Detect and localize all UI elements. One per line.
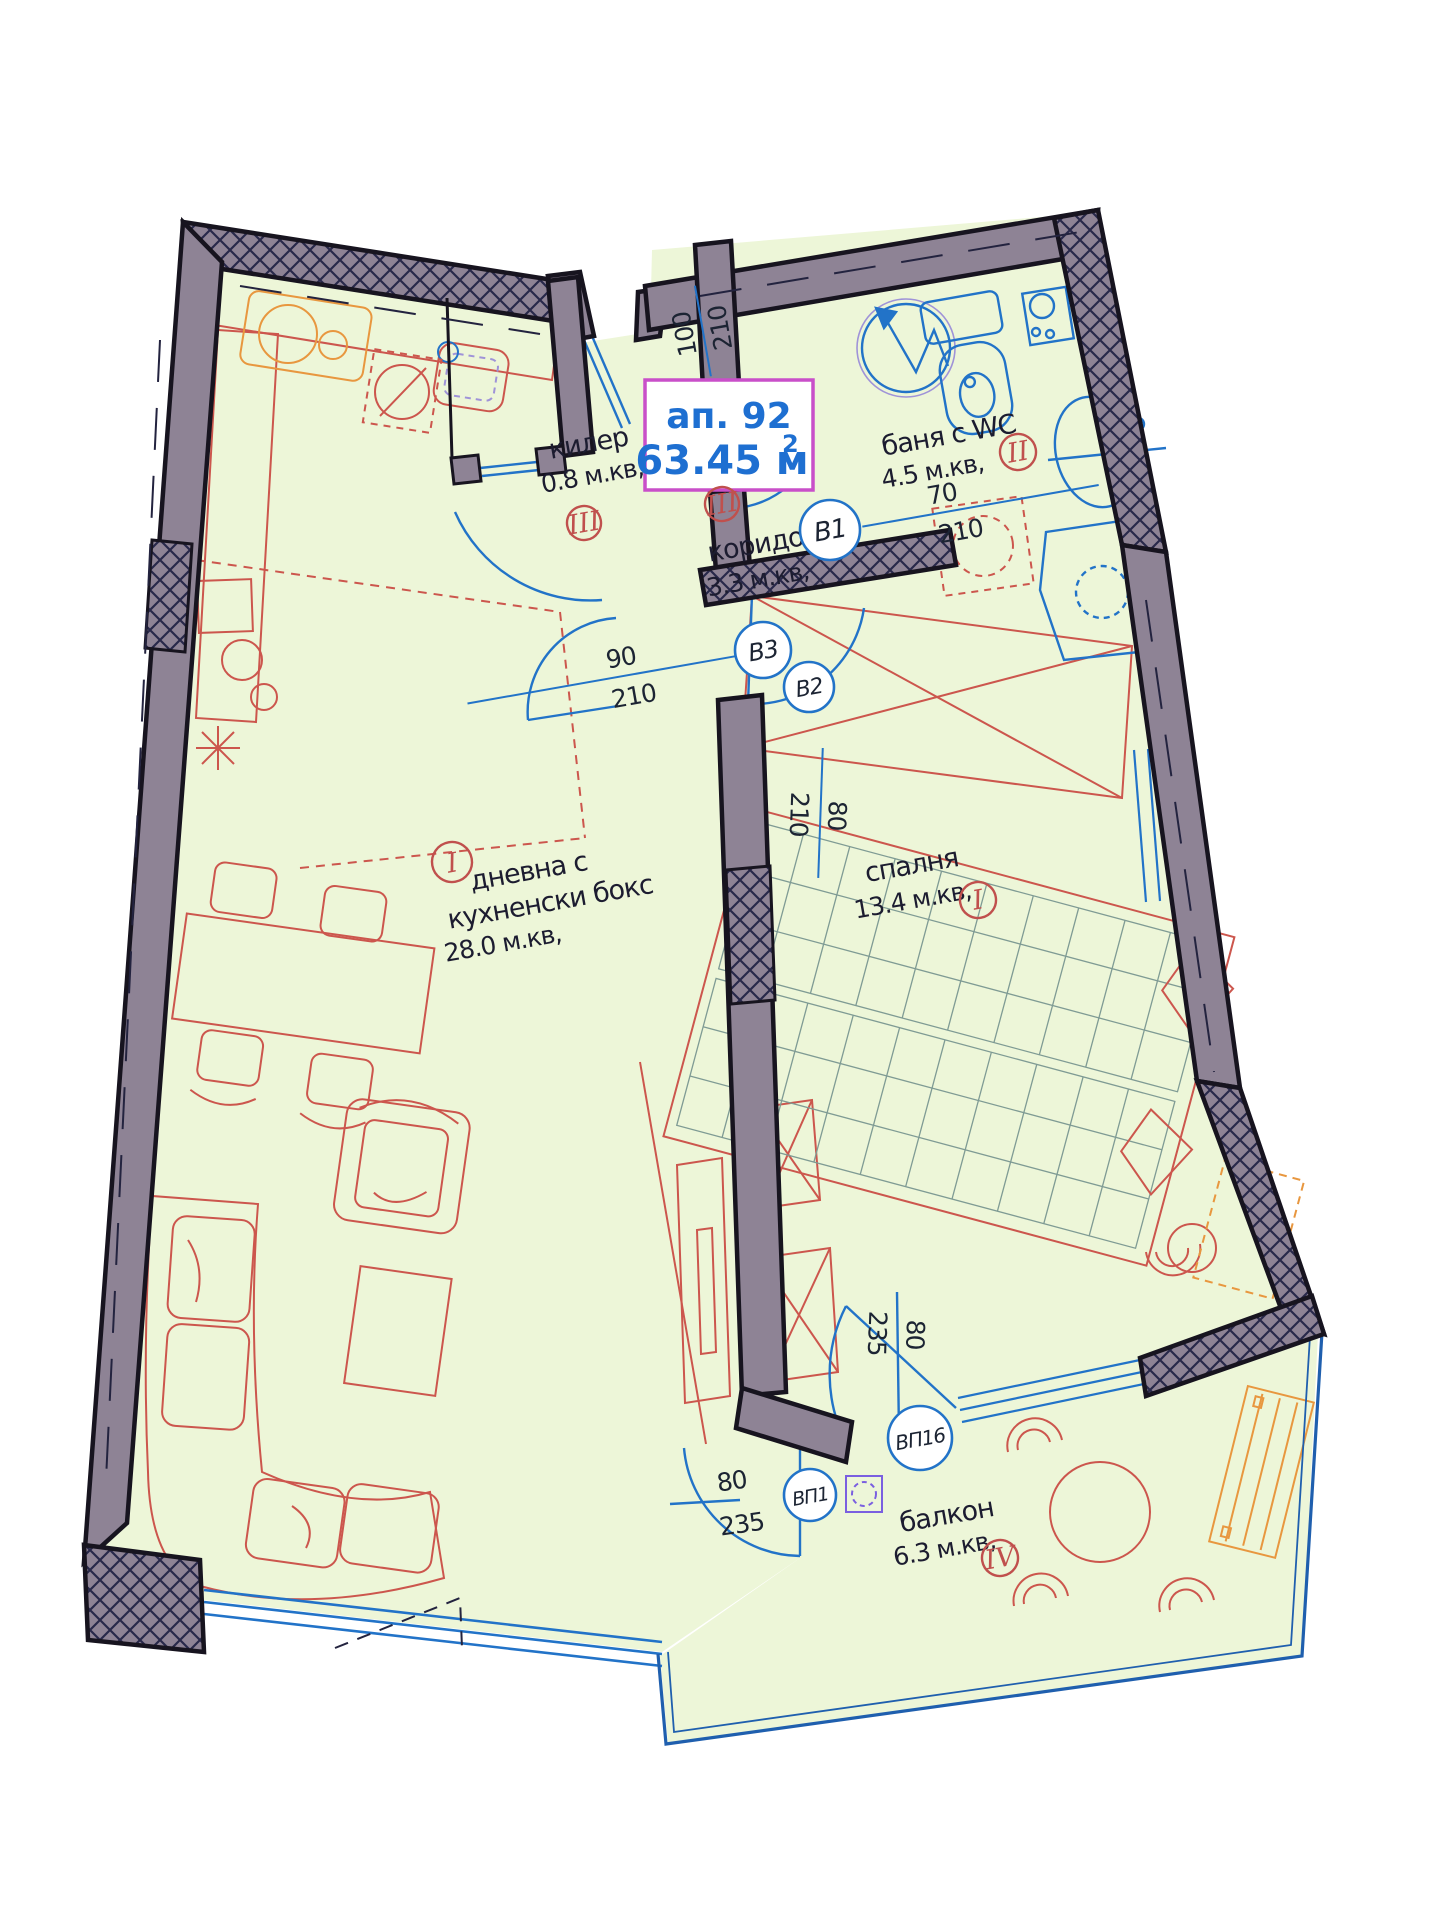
svg-text:80: 80 xyxy=(715,1465,749,1498)
wall-left-hatch xyxy=(145,540,192,652)
wall-middle-hatch xyxy=(726,866,775,1004)
svg-text:В3: В3 xyxy=(746,635,780,668)
wall-pantry-bottom-a xyxy=(451,455,481,484)
svg-text:III: III xyxy=(703,486,742,522)
floorplan-page: ап. 92 63.45 м 2 килер 0.8 м.кв, коридор… xyxy=(0,0,1434,1920)
svg-text:III: III xyxy=(565,505,604,541)
apartment-area-sup: 2 xyxy=(782,430,799,458)
svg-text:235: 235 xyxy=(718,1507,766,1542)
apartment-number: ап. 92 xyxy=(666,396,791,437)
title-box: ап. 92 63.45 м 2 xyxy=(635,380,813,490)
wall-bottom-corner xyxy=(84,1545,204,1652)
floorplan-drawing: ап. 92 63.45 м 2 килер 0.8 м.кв, коридор… xyxy=(0,0,1434,1920)
svg-text:В1: В1 xyxy=(812,513,849,548)
svg-text:80: 80 xyxy=(900,1319,930,1350)
svg-text:235: 235 xyxy=(862,1310,893,1356)
svg-text:80: 80 xyxy=(822,800,852,831)
svg-text:90: 90 xyxy=(604,641,638,675)
svg-text:70: 70 xyxy=(925,477,959,511)
svg-text:210: 210 xyxy=(784,791,815,837)
svg-text:В2: В2 xyxy=(794,674,825,703)
